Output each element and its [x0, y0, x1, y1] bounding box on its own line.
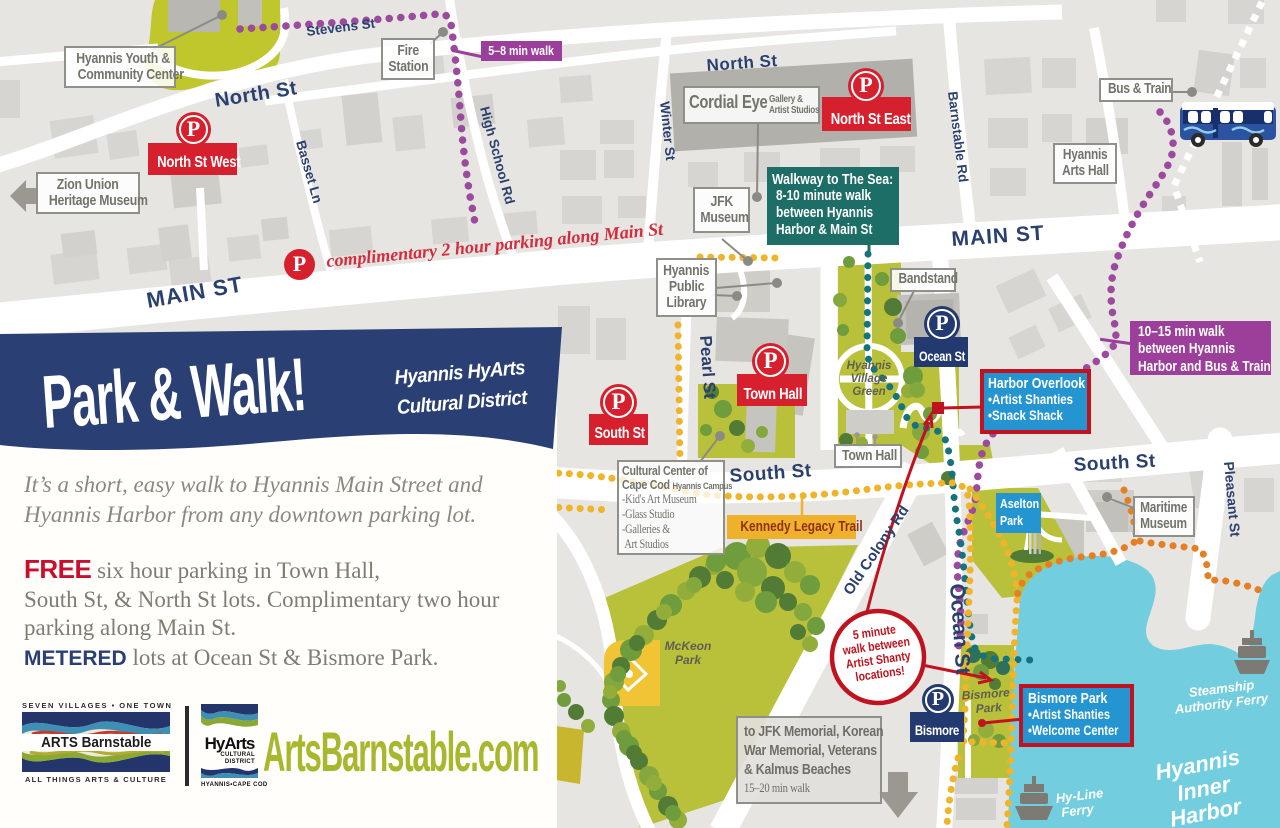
svg-text:Hyannis: Hyannis [847, 360, 892, 372]
svg-text:Park: Park [675, 653, 702, 667]
svg-text:Park: Park [975, 700, 1003, 716]
svg-text:McKeon: McKeon [665, 639, 712, 653]
svg-text:South St: South St [1073, 451, 1156, 476]
svg-text:Village: Village [851, 373, 888, 385]
svg-text:Green: Green [852, 386, 885, 398]
